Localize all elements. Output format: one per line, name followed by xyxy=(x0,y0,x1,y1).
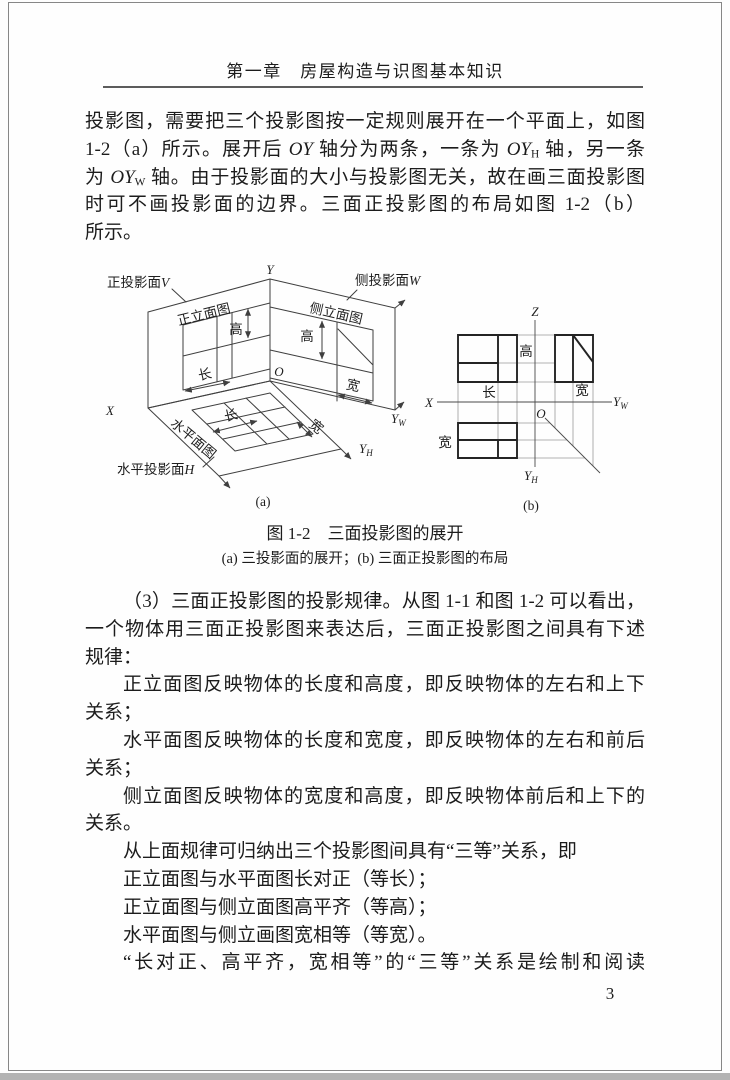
axis-x-label: X xyxy=(105,403,115,418)
dim-height-label: 高 xyxy=(519,343,533,359)
body-text-line: 规律： xyxy=(85,644,645,672)
body-text-line: 从上面规律可归纳出三个投影图间具有“三等”关系，即 xyxy=(85,838,645,866)
body-text-line: 正立面图反映物体的长度和高度，即反映物体的左右和上下 xyxy=(85,671,645,699)
plane-v-label: 正投影面V xyxy=(107,275,171,290)
subfigure-b-tag: (b) xyxy=(523,498,539,513)
unfold-arrow-yw xyxy=(395,402,404,410)
plan-view-outline xyxy=(458,423,517,458)
origin-label: O xyxy=(536,406,546,421)
body-text-line: 正立面图与侧立面图高平齐（等高）； xyxy=(85,894,645,922)
dim-width-plan-label: 宽 xyxy=(438,434,452,450)
body-text-line: 一个物体用三面正投影图来表达后，三面正投影图之间具有下述 xyxy=(85,616,645,644)
dim-length-front-label: 长 xyxy=(197,366,214,384)
body-text-line: 水平面图与侧立画图宽相等（等宽）。 xyxy=(85,922,645,950)
book-page: 第一章 房屋构造与识图基本知识 投影图，需要把三个投影图按一定规则展开在一个平面… xyxy=(0,0,730,1080)
plane-v-outline xyxy=(148,279,270,408)
front-view-outline xyxy=(458,335,517,382)
origin-label: O xyxy=(274,364,284,379)
plane-h-label: 水平投影面H xyxy=(117,462,196,477)
chapter-header: 第一章 房屋构造与识图基本知识 xyxy=(85,57,645,82)
axis-yh-label: YH xyxy=(524,468,538,485)
figure-1-2b-orthographic-layout: Z X O YW YH 高 长 宽 宽 (b) xyxy=(420,270,655,520)
unfold-arrow-w-top xyxy=(395,300,405,308)
axis-yh-label: YH xyxy=(359,441,373,458)
body-text-line: 正立面图与水平面图长对正（等长）； xyxy=(85,866,645,894)
dim-height-front-label: 高 xyxy=(229,321,243,337)
side-view-label: 侧立面图 xyxy=(308,300,364,327)
body-text-line: 时可不画投影面的边界。三面正投影图的布局如图 1-2（b） xyxy=(85,191,645,219)
axis-x-label: X xyxy=(424,395,434,410)
dim-length-label: 长 xyxy=(482,385,496,400)
body-text-line: 投影图，需要把三个投影图按一定规则展开在一个平面上，如图 xyxy=(85,108,645,136)
page-number: 3 xyxy=(585,984,635,1004)
miter-diagonal-line xyxy=(545,418,600,473)
body-text-line: （3）三面正投影图的投影规律。从图 1-1 和图 1-2 可以看出， xyxy=(85,588,645,616)
paragraph-2: （3）三面正投影图的投影规律。从图 1-1 和图 1-2 可以看出， 一个物体用… xyxy=(85,588,645,977)
plane-w-outline xyxy=(270,279,395,410)
paragraph-1: 投影图，需要把三个投影图按一定规则展开在一个平面上，如图 1-2（a）所示。展开… xyxy=(85,108,645,247)
axis-yw-label: YW xyxy=(613,394,629,411)
subfigure-a-tag: (a) xyxy=(256,494,271,509)
plane-w-label: 侧投影面W xyxy=(355,273,422,288)
dim-arrow-length-plan xyxy=(213,421,257,432)
body-text-line: 关系； xyxy=(85,699,645,727)
unfold-arrow-yh xyxy=(341,449,351,459)
axis-z-label: Z xyxy=(531,304,539,319)
figure-caption: 图 1-2 三面投影图的展开 xyxy=(85,519,645,544)
body-text-line: 为 OYW 轴。由于投影面的大小与投影图无关，故在画三面投影图 xyxy=(85,164,645,192)
body-text-line: 1-2（a）所示。展开后 OY 轴分为两条，一条为 OYH 轴，另一条 xyxy=(85,136,645,164)
unfold-arrow-h-bottom xyxy=(219,476,230,488)
front-view-label: 正立面图 xyxy=(176,301,232,329)
body-text-line: 关系； xyxy=(85,755,645,783)
dim-arrow-width-side xyxy=(338,395,372,403)
body-text-line: 所示。 xyxy=(85,219,645,247)
dim-height-side-label: 高 xyxy=(300,328,314,344)
dim-width-side-label: 宽 xyxy=(575,382,589,398)
dim-arrow-length-front xyxy=(185,382,230,391)
body-text-line: 侧立面图反映物体的宽度和高度，即反映物体前后和上下的 xyxy=(85,783,645,811)
axis-yw-label: YW xyxy=(391,411,407,428)
body-text-line: 水平面图反映物体的长度和宽度，即反映物体的左右和前后 xyxy=(85,727,645,755)
figure-subcaption: (a) 三投影面的展开；(b) 三面正投影图的布局 xyxy=(85,547,645,568)
dim-width-side-label: 宽 xyxy=(345,376,362,395)
side-view-outline xyxy=(555,335,593,382)
axis-y-label: Y xyxy=(266,262,275,277)
scan-edge-strip xyxy=(0,1073,730,1080)
figure-1-2a-unfolded-planes: 正投影面V 侧投影面W 水平投影面H 正立面图 侧立面图 水平面图 高 长 高 … xyxy=(85,255,430,517)
body-text-line: 关系。 xyxy=(85,810,645,838)
dim-length-plan-label: 长 xyxy=(223,407,240,425)
plan-view-label: 水平面图 xyxy=(168,416,219,462)
header-rule xyxy=(103,86,643,88)
body-text-line: “长对正、高平齐，宽相等”的“三等”关系是绘制和阅读 xyxy=(85,949,645,977)
